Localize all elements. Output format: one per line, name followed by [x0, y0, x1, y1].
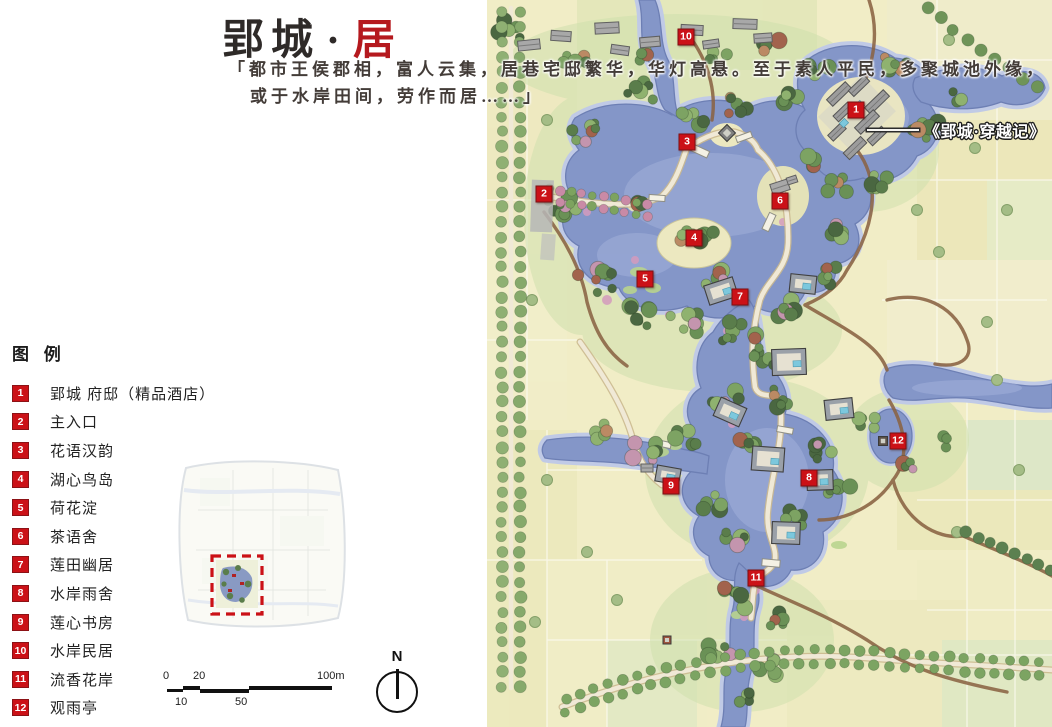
map-marker-number: 11	[750, 573, 761, 584]
scale-label-50: 50	[235, 696, 247, 708]
page: 123456789101112 《郢城·穿越记》 郢城·居 「都市王侯郡相，富人…	[0, 0, 1052, 727]
legend: 图 例 1郢城 府邸（精品酒店）2主入口3花语汉韵4湖心鸟岛5荷花淀6茶语舍7莲…	[12, 340, 215, 722]
map-marker-3: 3	[679, 134, 696, 151]
north-label: N	[374, 648, 420, 665]
legend-number-badge: 11	[12, 671, 29, 688]
map-marker-6: 6	[772, 193, 789, 210]
legend-label: 荷花淀	[50, 497, 98, 518]
legend-header: 图 例	[12, 340, 215, 365]
quote-line-1: 「都市王侯郡相，富人云集，居巷宅邸繁华，华灯高悬。至于素人平民，多聚城池外缘，	[228, 56, 1043, 83]
compass-needle	[396, 669, 399, 699]
legend-label: 莲心书房	[50, 612, 114, 633]
legend-number-badge: 9	[12, 614, 29, 631]
map-marker-number: 10	[680, 32, 692, 43]
map-marker-number: 5	[642, 274, 648, 285]
map-marker-number: 9	[668, 481, 674, 492]
legend-label: 花语汉韵	[50, 440, 114, 461]
legend-number-badge: 2	[12, 413, 29, 430]
map-marker-number: 6	[777, 196, 783, 207]
legend-item-1: 1郢城 府邸（精品酒店）	[12, 379, 215, 408]
map-marker-number: 8	[806, 473, 812, 484]
scale-label-20: 20	[193, 670, 205, 682]
legend-number-badge: 5	[12, 499, 29, 516]
map-marker-12: 12	[890, 433, 907, 450]
legend-label: 流香花岸	[50, 669, 114, 690]
map-marker-9: 9	[663, 478, 680, 495]
quote-block: 「都市王侯郡相，富人云集，居巷宅邸繁华，华灯高悬。至于素人平民，多聚城池外缘， …	[228, 56, 1043, 110]
map-marker-number: 3	[684, 137, 690, 148]
map-marker-4: 4	[686, 230, 703, 247]
legend-number-badge: 10	[12, 642, 29, 659]
map-marker-number: 2	[541, 189, 547, 200]
legend-label: 莲田幽居	[50, 554, 114, 575]
map-marker-8: 8	[801, 470, 818, 487]
legend-item-5: 5荷花淀	[12, 493, 215, 522]
north-arrow: N	[374, 648, 420, 718]
scale-label-0: 0	[163, 670, 169, 682]
legend-label: 观雨亭	[50, 697, 98, 718]
legend-number-badge: 1	[12, 385, 29, 402]
legend-number-badge: 12	[12, 699, 29, 716]
map-marker-2: 2	[536, 186, 553, 203]
legend-label: 郢城 府邸（精品酒店）	[50, 383, 215, 404]
legend-item-9: 9莲心书房	[12, 608, 215, 637]
annotation-leader-line	[867, 129, 919, 132]
legend-number-badge: 7	[12, 556, 29, 573]
legend-label: 水岸民居	[50, 640, 114, 661]
legend-item-2: 2主入口	[12, 408, 215, 437]
legend-number-badge: 8	[12, 585, 29, 602]
legend-item-8: 8水岸雨舍	[12, 579, 215, 608]
scale-label-100m: 100m	[317, 670, 345, 682]
legend-label: 水岸雨舍	[50, 583, 114, 604]
legend-label: 茶语舍	[50, 526, 98, 547]
map-marker-number: 4	[691, 233, 697, 244]
scale-bar: 0 20 100m 10 50	[155, 670, 355, 716]
quote-line-2: 或于水岸田间，劳作而居……」	[228, 83, 1043, 110]
legend-label: 湖心鸟岛	[50, 469, 114, 490]
legend-number-badge: 3	[12, 442, 29, 459]
legend-item-4: 4湖心鸟岛	[12, 465, 215, 494]
legend-item-6: 6茶语舍	[12, 522, 215, 551]
map-marker-7: 7	[732, 289, 749, 306]
map-marker-number: 7	[737, 292, 743, 303]
legend-item-10: 10水岸民居	[12, 636, 215, 665]
legend-number-badge: 4	[12, 471, 29, 488]
map-marker-11: 11	[748, 570, 765, 587]
scale-label-10: 10	[175, 696, 187, 708]
legend-label: 主入口	[50, 411, 98, 432]
legend-item-7: 7莲田幽居	[12, 551, 215, 580]
annotation-callout: 《郢城·穿越记》	[867, 118, 1045, 142]
map-marker-5: 5	[637, 271, 654, 288]
annotation-text: 《郢城·穿越记》	[924, 118, 1045, 142]
legend-item-3: 3花语汉韵	[12, 436, 215, 465]
legend-number-badge: 6	[12, 528, 29, 545]
map-marker-10: 10	[678, 29, 695, 46]
map-marker-number: 12	[892, 436, 904, 447]
